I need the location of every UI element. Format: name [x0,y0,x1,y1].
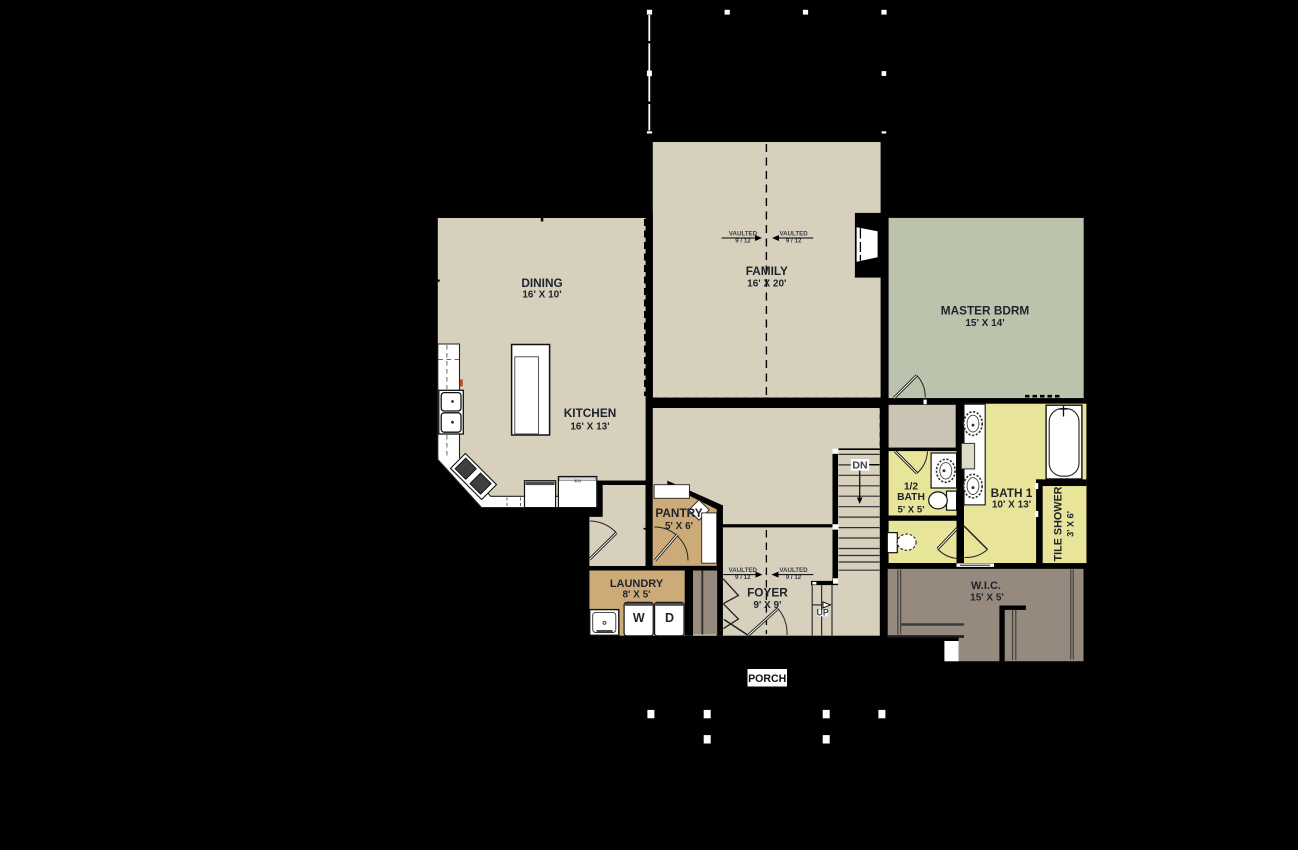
svg-text:PORCH: PORCH [748,673,786,685]
svg-text:VAULTED: VAULTED [729,230,758,237]
svg-text:FAMILY: FAMILY [746,264,788,278]
svg-text:8' X 5': 8' X 5' [622,590,650,601]
svg-text:9 / 12: 9 / 12 [735,238,751,245]
svg-text:PANTRY: PANTRY [655,506,702,520]
svg-text:15' X 5': 15' X 5' [970,593,1004,604]
svg-text:9 / 12: 9 / 12 [786,238,802,245]
svg-text:TILE SHOWER: TILE SHOWER [1053,486,1065,561]
svg-text:5' X 5': 5' X 5' [898,505,925,516]
svg-text:3' X 6': 3' X 6' [1066,511,1076,537]
svg-text:5' X 6': 5' X 6' [665,521,693,532]
svg-text:16' X 10': 16' X 10' [522,290,561,301]
svg-text:484: 484 [574,478,582,483]
svg-text:LAUNDRY: LAUNDRY [610,578,664,590]
svg-text:9 / 12: 9 / 12 [735,574,751,581]
svg-text:DINING: DINING [521,276,562,290]
svg-text:16' X 20': 16' X 20' [747,279,786,290]
svg-text:VAULTED: VAULTED [729,567,758,574]
svg-text:KITCHEN: KITCHEN [564,406,616,420]
svg-text:D: D [665,611,674,625]
svg-text:VAULTED: VAULTED [779,567,808,574]
svg-text:BATH 1: BATH 1 [991,486,1033,500]
svg-text:DN: DN [852,459,867,471]
svg-text:9 / 12: 9 / 12 [786,574,802,581]
svg-text:BATH: BATH [897,492,925,503]
svg-text:FOYER: FOYER [747,586,788,600]
svg-text:16' X 13': 16' X 13' [570,422,609,433]
svg-text:MASTER BDRM: MASTER BDRM [941,304,1030,318]
svg-text:10' X 13': 10' X 13' [992,500,1031,511]
svg-text:UP: UP [816,607,828,617]
svg-text:VAULTED: VAULTED [779,230,808,237]
svg-text:W.I.C.: W.I.C. [971,580,1001,592]
svg-text:W: W [633,611,645,625]
svg-text:1/2: 1/2 [904,481,919,492]
svg-text:15' X 14': 15' X 14' [965,318,1004,329]
